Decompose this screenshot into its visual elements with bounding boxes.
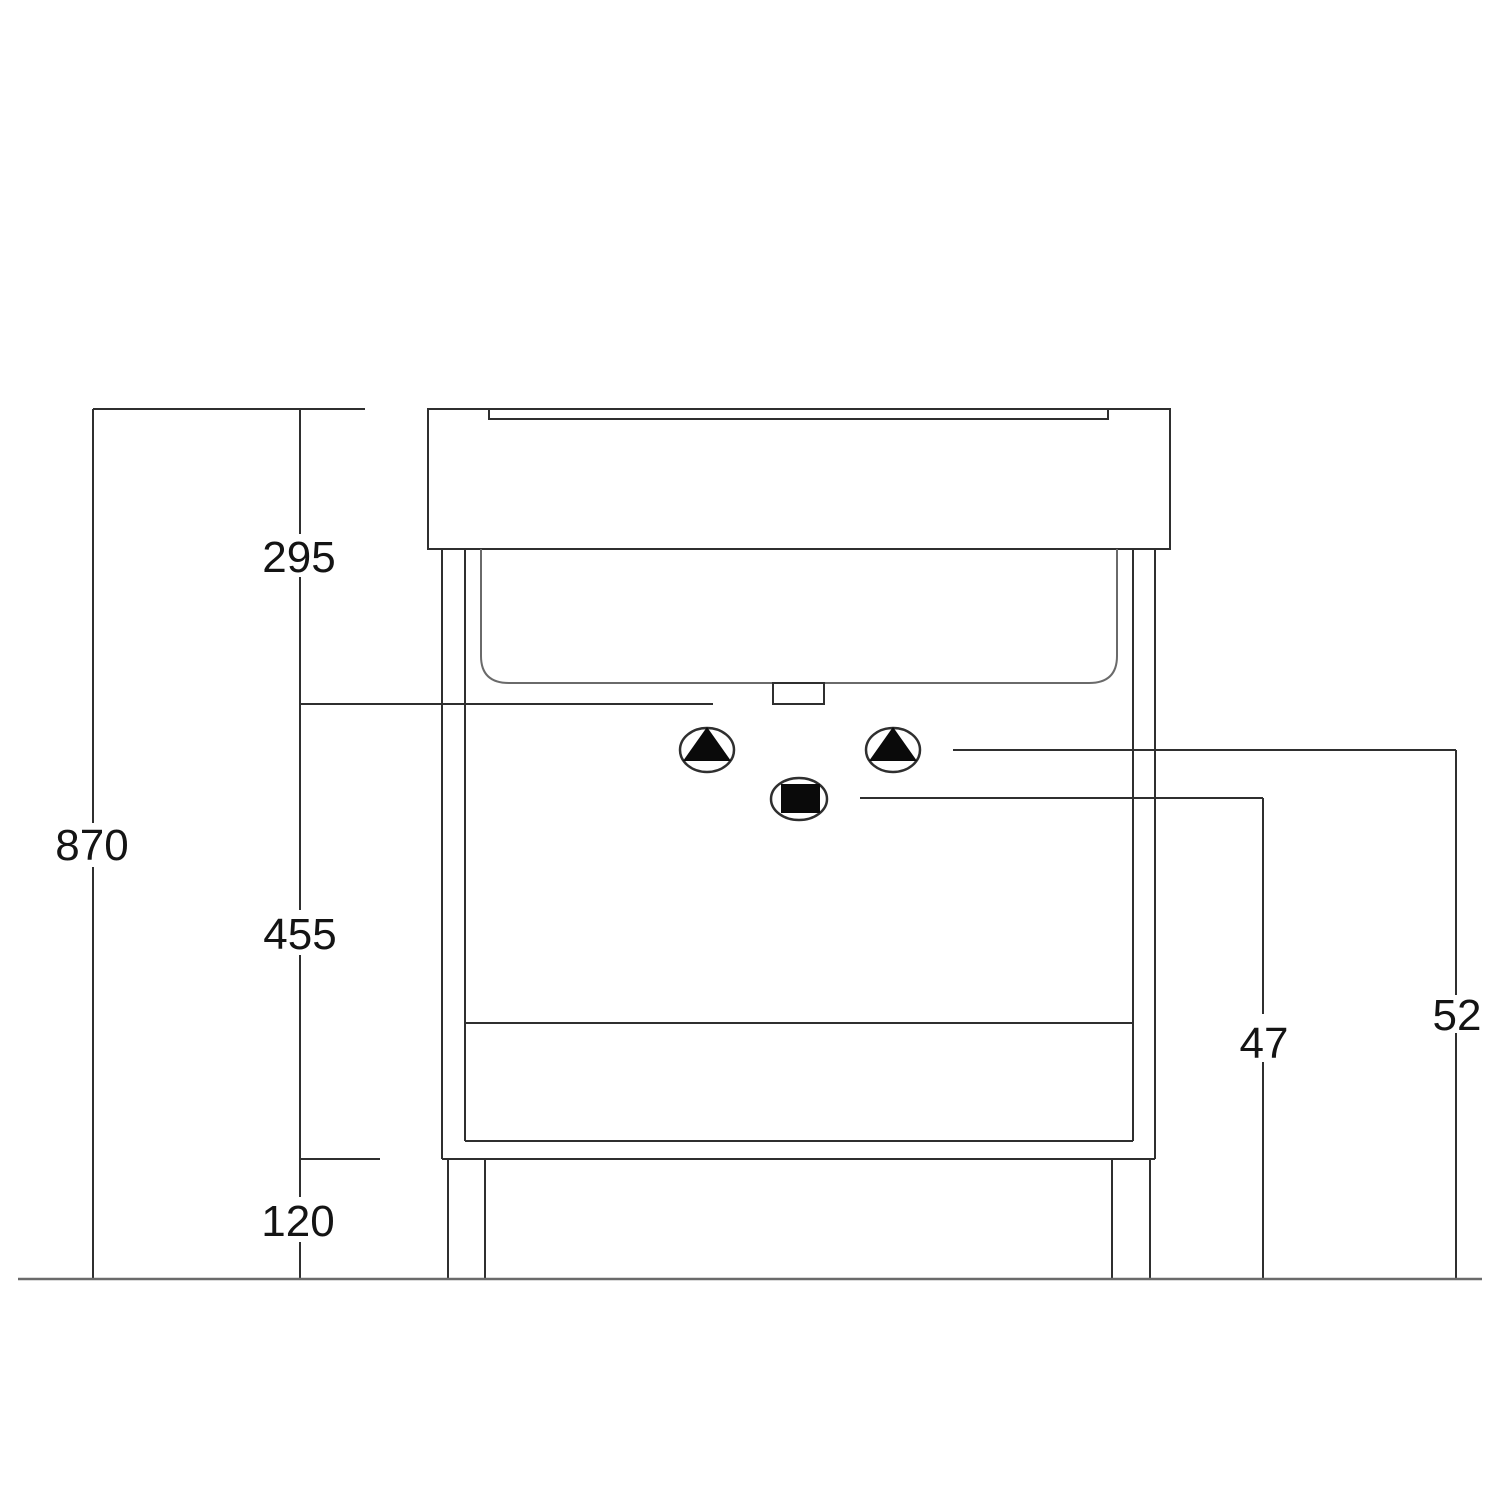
cabinet-bottom-panel	[442, 1141, 1155, 1159]
vanity-unit-dimension-drawing: 870 295 455 120 47 52	[0, 0, 1500, 1500]
dim-label-legs: 120	[261, 1197, 334, 1246]
supply-height-leader-line	[953, 750, 1456, 1279]
cabinet-left-side-panel	[442, 549, 465, 1159]
technical-drawing-canvas: 870 295 455 120 47 52	[0, 0, 1500, 1500]
dim-label-total-height: 870	[55, 821, 128, 870]
cabinet-right-side-panel	[1133, 549, 1155, 1159]
plumbing-symbols	[680, 727, 920, 820]
left-leg	[448, 1159, 485, 1279]
dim-label-waste-offset: 47	[1240, 1019, 1289, 1068]
waste-symbol-square-icon	[781, 784, 820, 813]
vanity-unit-outline	[428, 409, 1170, 1279]
countertop-outline	[428, 409, 1170, 549]
dim-label-top-section: 295	[262, 533, 335, 582]
right-leg	[1112, 1159, 1150, 1279]
dim-label-supply-offset: 52	[1433, 991, 1482, 1040]
dim-label-middle-section: 455	[263, 910, 336, 959]
dimension-labels: 870 295 455 120 47 52	[55, 533, 1481, 1246]
overflow-drain-box	[773, 683, 824, 704]
waste-height-leader-line	[860, 798, 1263, 1279]
basin-bowl-outline	[481, 549, 1117, 683]
